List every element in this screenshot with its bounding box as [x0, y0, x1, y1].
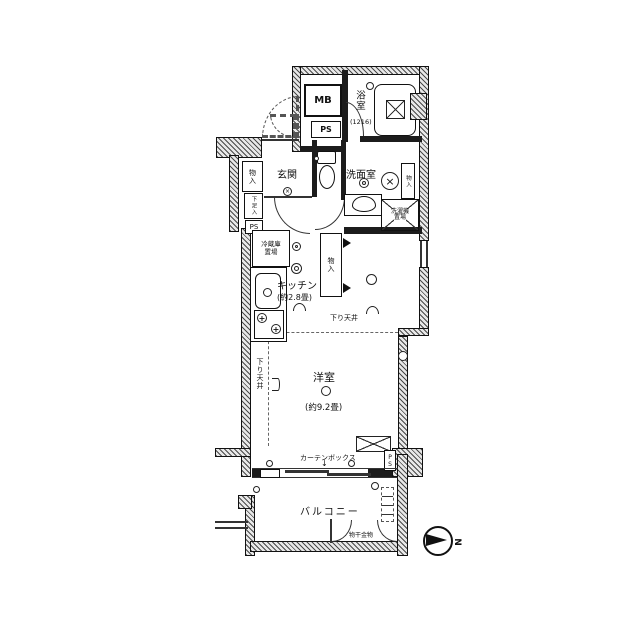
north-arrow — [423, 526, 453, 556]
balcony-label: バルコニー — [300, 503, 360, 518]
wall-left-main — [241, 228, 251, 477]
wall-light-icon-3 — [272, 378, 280, 391]
wall-bottom-left-stub — [215, 448, 251, 457]
wall-left-upper — [229, 155, 239, 232]
refrigerator-area: 冷蔵庫 置場 — [252, 230, 290, 267]
kitchen-faucet-icon — [263, 288, 272, 297]
wall-top — [292, 66, 424, 75]
bathroom-size-label: (1216) — [350, 118, 372, 126]
pipe-space-bottom-label: PS — [387, 454, 394, 468]
light-icon-1 — [292, 242, 301, 251]
washroom-light-icon — [359, 178, 369, 188]
balcony-partition-post — [330, 519, 332, 543]
light-icon-3 — [366, 274, 377, 285]
light-icon-2-inner — [294, 266, 299, 271]
bath-fixture-icon — [366, 82, 374, 90]
kitchen-label: キッチン — [277, 277, 317, 292]
entrance-closet-label: 物入 — [248, 169, 258, 185]
wall-light-icon-2 — [366, 306, 379, 314]
washroom-closet-label: 物入 — [404, 175, 412, 188]
kitchen-size-label: (約2.8畳) — [277, 292, 312, 303]
wall-topleft-block — [216, 137, 262, 158]
balcony-railing — [250, 541, 402, 552]
wall-balcony-right — [397, 454, 408, 556]
sliding-panel-left — [285, 470, 329, 473]
lowered-ceiling-western-label: 下り天井 — [255, 358, 265, 390]
western-room-label: 洋室 — [313, 369, 335, 385]
vanity-sink — [352, 196, 376, 212]
balcony-faucet-icon — [253, 486, 260, 493]
lowered-ceiling-line-v — [268, 336, 269, 446]
toilet-flush-icon — [314, 156, 319, 161]
genkan-label: 玄関 — [277, 166, 297, 181]
sliding-panel-right — [327, 473, 371, 476]
window-hardware-2 — [348, 460, 355, 467]
neighbor-wall-line-2 — [215, 527, 248, 529]
laundry-hardware-label: 物干金物 — [349, 530, 373, 539]
hall-closet-label: 物入 — [326, 257, 336, 273]
floor-plan: MB PS 浴室 (1216) 物入 下足入 PS 玄関 × 洗面室 × 物入 … — [0, 0, 640, 640]
curtain-box-arrow: ↓ — [321, 459, 328, 468]
stove-burner-1: + — [257, 313, 267, 323]
neighbor-wall-line-1 — [215, 521, 248, 523]
fridge-label-2: 置場 — [265, 249, 278, 257]
washroom-closet: 物入 — [401, 163, 415, 199]
window-hardware-3 — [371, 482, 379, 490]
bathtub-drain-box — [386, 100, 405, 119]
ladder-rung-1 — [382, 496, 393, 497]
north-arrow-triangle — [426, 534, 447, 546]
wall-bath-bottom — [360, 136, 422, 142]
wall-balcony-corner — [238, 495, 252, 509]
genkan-fixture-icon: × — [283, 187, 292, 196]
small-window-left — [260, 469, 280, 478]
meter-box-label: MB — [314, 95, 332, 106]
wall-toilet-left — [312, 140, 317, 197]
wall-right-step — [398, 328, 429, 336]
entrance-closet: 物入 — [242, 161, 263, 192]
ladder-rung-2 — [382, 505, 393, 506]
wall-light-icon-1 — [293, 303, 306, 311]
closet-door-arrow-bottom — [343, 283, 351, 293]
western-room-size-label: (約9.2畳) — [305, 401, 342, 413]
pipe-space-top-label: PS — [320, 125, 332, 134]
shoe-cabinet: 下足入 — [244, 193, 263, 219]
pipe-space-top: PS — [311, 121, 341, 138]
washroom-light-inner — [362, 181, 366, 185]
window-hardware-1 — [266, 460, 273, 467]
washer-tap-icon: × — [381, 172, 399, 190]
entrance-door-leaf — [262, 139, 299, 141]
washroom-door-arc — [315, 197, 345, 230]
stove-burner-2: + — [271, 324, 281, 334]
water-heater-box — [410, 93, 427, 120]
hall-door-arc — [274, 197, 310, 234]
meter-box: MB — [304, 84, 342, 117]
vent-icon-right-wall — [398, 351, 408, 361]
light-icon-2 — [291, 263, 302, 274]
shoe-cabinet-label: 下足入 — [250, 196, 258, 216]
light-icon-1-inner — [295, 245, 298, 248]
window-right-wall — [419, 240, 429, 268]
washing-machine-area: 洗濯機 置場 — [381, 199, 419, 231]
bathroom-label: 浴室 — [352, 90, 366, 111]
evacuation-ladder — [381, 487, 394, 522]
closet-door-arrow-top — [343, 238, 351, 248]
north-label: N — [452, 538, 462, 546]
toilet-bowl — [319, 165, 335, 189]
balcony-partition-arc-right — [377, 520, 397, 542]
lowered-ceiling-kitchen-label: 下り天井 — [330, 313, 358, 323]
toilet-tank — [317, 151, 336, 164]
hall-closet: 物入 — [320, 233, 342, 297]
washer-label-2: 置場 — [394, 215, 406, 221]
western-room-light-icon — [321, 386, 331, 396]
ladder-rung-3 — [382, 514, 393, 515]
